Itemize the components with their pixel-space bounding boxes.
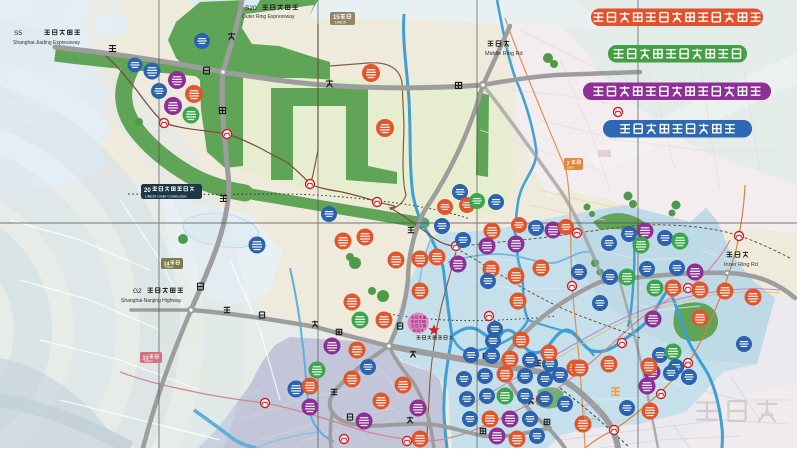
svg-text:20: 20	[144, 188, 151, 194]
svg-text:S5: S5	[14, 30, 22, 37]
svg-text:LINE14: LINE14	[165, 265, 174, 269]
svg-text:Middle Ring Rd: Middle Ring Rd	[485, 51, 523, 57]
svg-text:Inner Ring Rd: Inner Ring Rd	[724, 262, 758, 268]
svg-text:Outer Ring Expressway: Outer Ring Expressway	[242, 14, 295, 20]
svg-text:LINE13: LINE13	[144, 359, 153, 363]
svg-text:Shanghai-Jiading Expressway: Shanghai-Jiading Expressway	[13, 40, 80, 46]
svg-text:G2: G2	[133, 288, 142, 295]
svg-text:LINE20 Under Construction: LINE20 Under Construction	[145, 195, 187, 199]
svg-text:S20: S20	[245, 5, 257, 12]
svg-text:LINE15: LINE15	[335, 21, 346, 25]
svg-text:LINE7: LINE7	[567, 166, 575, 170]
svg-text:Shanghai-Nanjing Highway: Shanghai-Nanjing Highway	[121, 298, 182, 304]
